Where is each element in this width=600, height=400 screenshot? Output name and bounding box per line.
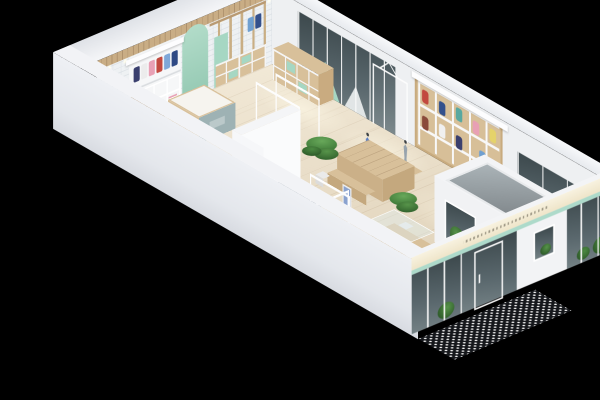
hung-coat-blue <box>248 16 254 32</box>
hung-coat-navy <box>255 13 261 29</box>
hung-garment <box>141 62 147 79</box>
ne-cubby-end <box>318 68 333 106</box>
hung-garment <box>134 66 140 83</box>
mint-box <box>287 61 295 75</box>
door-handle <box>479 274 481 283</box>
pier-porthole-window <box>533 224 554 263</box>
hung-garment <box>149 59 155 76</box>
glass-door-frame <box>474 240 503 310</box>
plant-behind-glass <box>540 242 551 257</box>
hung-garment <box>172 50 178 67</box>
render-stage <box>0 0 600 400</box>
mannequin-head <box>404 139 407 144</box>
mannequin-head <box>366 132 369 137</box>
hung-garment <box>164 53 170 70</box>
hung-garment <box>156 56 162 73</box>
mint-box <box>242 54 251 65</box>
mint-box <box>229 69 238 80</box>
